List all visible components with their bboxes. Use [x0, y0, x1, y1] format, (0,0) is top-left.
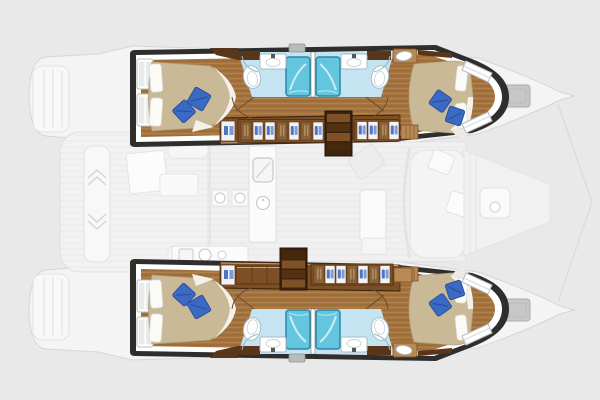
plain-cabinet — [236, 266, 282, 284]
galley-sink-icon — [257, 197, 270, 210]
companionway-stairs — [280, 248, 307, 290]
companionway-stairs — [325, 111, 352, 156]
cockpit-console — [84, 146, 110, 262]
windlass-icon — [490, 202, 500, 212]
catamaran-floor-plan — [0, 0, 600, 400]
salon-table — [360, 190, 386, 242]
floor-plan-canvas — [0, 0, 600, 400]
